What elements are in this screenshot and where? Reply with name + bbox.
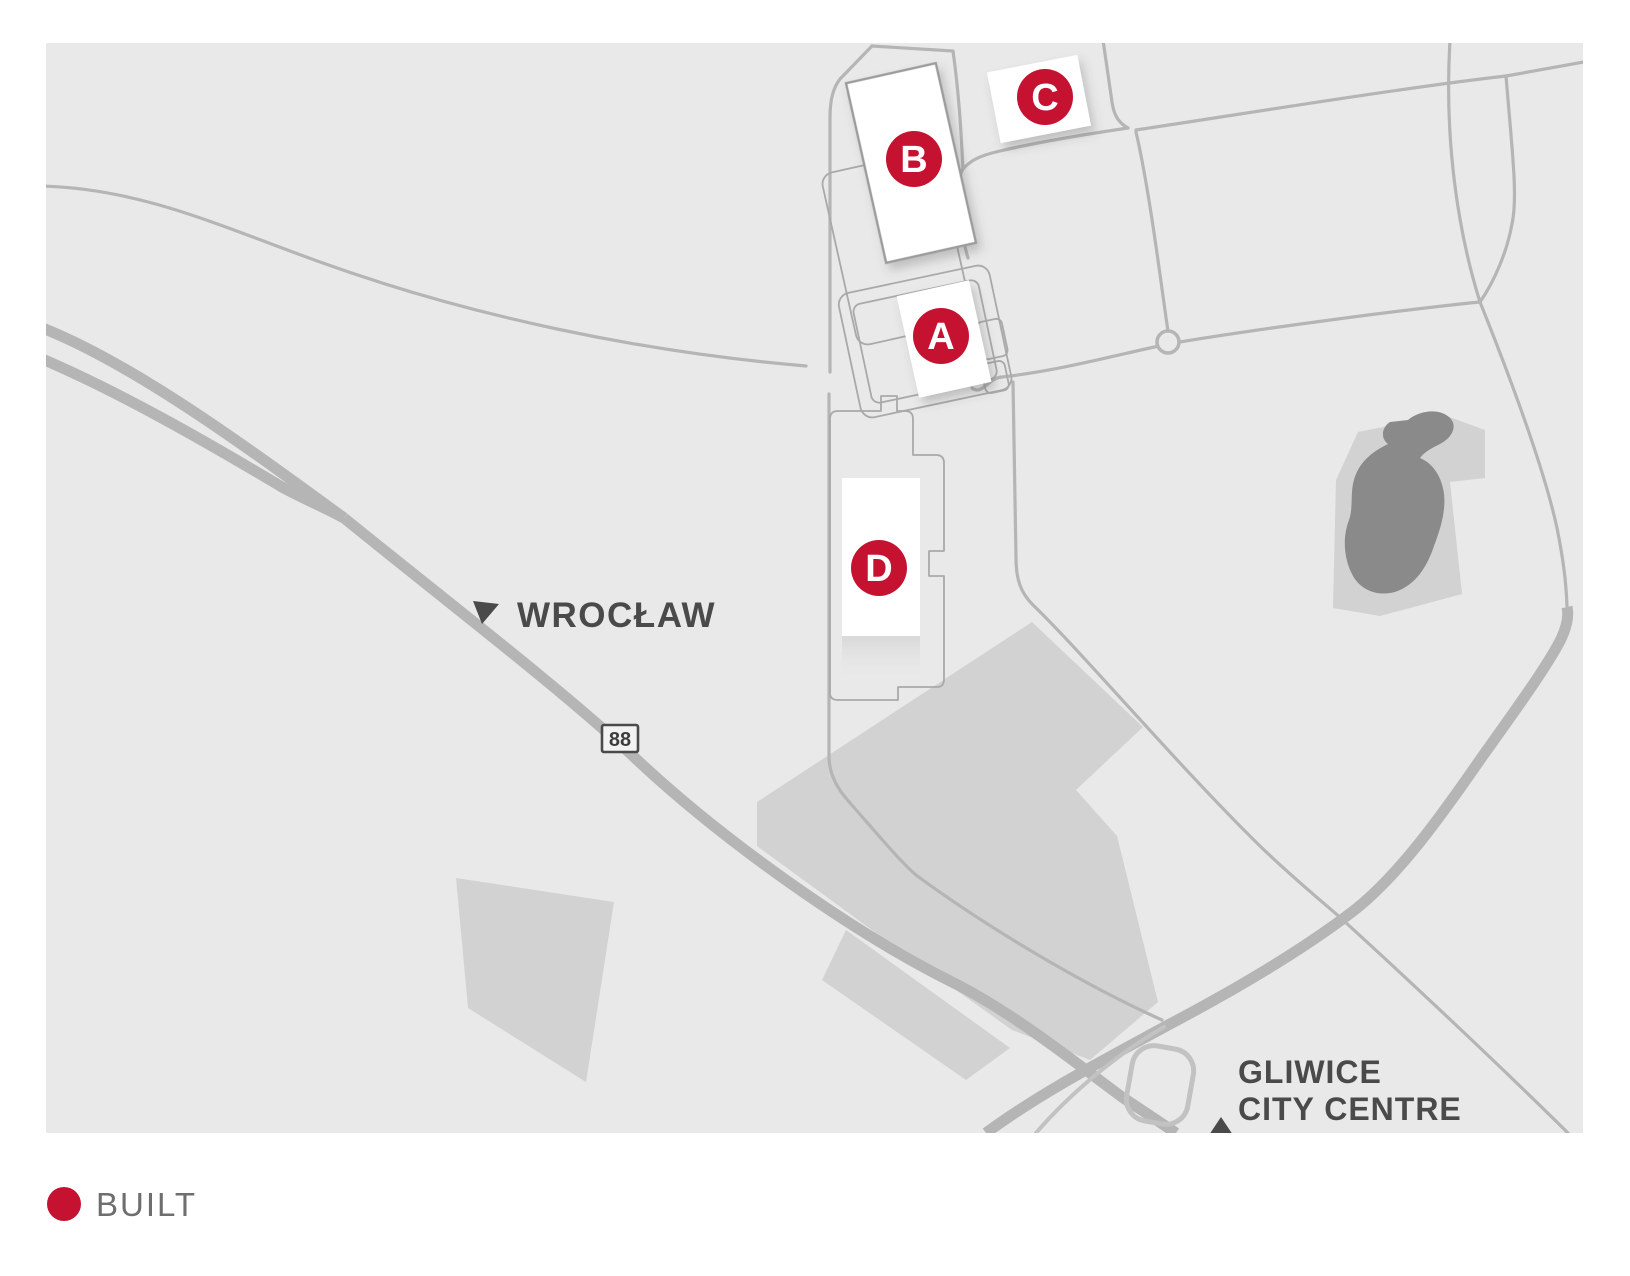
site-marker-c: C	[1017, 69, 1073, 125]
legend-built-label: BUILT	[96, 1186, 197, 1223]
legend: BUILT	[47, 1186, 197, 1223]
gliwice-label-line2: CITY CENTRE	[1238, 1091, 1462, 1127]
site-marker-b-letter: B	[900, 139, 927, 181]
building-d-fade	[842, 636, 920, 680]
site-map: B C A D WROCŁAW 88 GLIWICE	[0, 0, 1630, 1276]
road-88-shield: 88	[602, 725, 638, 752]
site-marker-a-letter: A	[927, 316, 954, 358]
site-marker-a: A	[913, 308, 969, 364]
page: B C A D WROCŁAW 88 GLIWICE	[0, 0, 1630, 1276]
site-marker-d-letter: D	[865, 548, 892, 590]
legend-built-dot	[47, 1187, 81, 1221]
gliwice-label-line1: GLIWICE	[1238, 1054, 1382, 1090]
site-marker-b: B	[886, 131, 942, 187]
site-marker-c-letter: C	[1031, 77, 1058, 119]
wroclaw-label: WROCŁAW	[517, 596, 716, 635]
road-88-shield-number: 88	[609, 729, 631, 751]
site-marker-d: D	[851, 540, 907, 596]
roundabout	[1157, 331, 1179, 353]
